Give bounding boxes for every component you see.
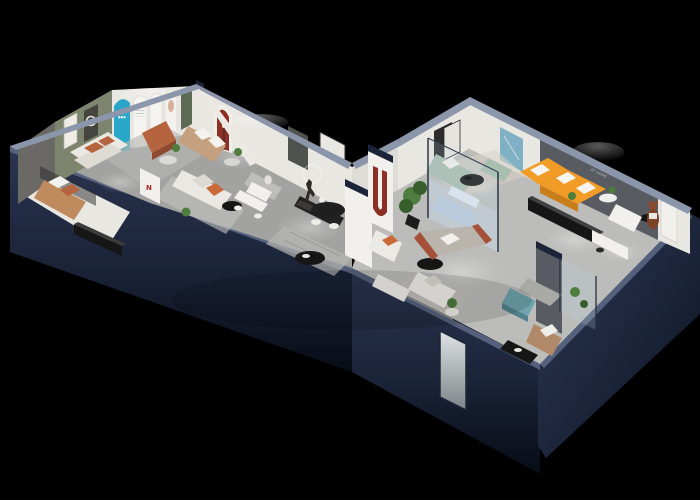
dining-chair-white bbox=[329, 223, 339, 229]
mirror-door bbox=[440, 331, 466, 410]
column-logo-mark: N bbox=[146, 184, 152, 192]
black-stool bbox=[596, 248, 604, 253]
potted-plant bbox=[172, 144, 180, 152]
poster-line bbox=[136, 116, 145, 117]
bear-bib bbox=[649, 213, 657, 219]
potted-plant bbox=[182, 208, 191, 217]
sofa-plant bbox=[568, 192, 576, 200]
cactus-plant bbox=[580, 300, 588, 308]
dining-chair bbox=[234, 206, 242, 211]
round-coffee-table bbox=[159, 156, 177, 165]
poster-line bbox=[136, 113, 145, 114]
indoor-tree bbox=[399, 199, 413, 213]
floor-shadow bbox=[172, 270, 532, 330]
table-plant bbox=[609, 187, 616, 194]
showroom-render: ●●● 888 LIFE IS THAT WE G bbox=[0, 0, 700, 500]
table-tray bbox=[514, 348, 522, 352]
dining-chair-white bbox=[311, 219, 321, 225]
side-table bbox=[224, 158, 240, 166]
cactus-plant bbox=[570, 287, 580, 297]
indoor-tree bbox=[413, 181, 427, 195]
poster-portrait-figure bbox=[168, 100, 174, 112]
white-tower-column bbox=[345, 186, 372, 268]
isometric-floorplan-svg: ●●● 888 LIFE IS THAT WE G bbox=[0, 0, 700, 500]
poster-line bbox=[136, 110, 145, 111]
red-u-column bbox=[368, 151, 393, 233]
black-oval-table bbox=[417, 258, 443, 270]
potted-plant bbox=[234, 148, 242, 156]
black-dining-table bbox=[311, 202, 345, 218]
table-tray bbox=[302, 254, 310, 258]
bear-ear bbox=[655, 201, 658, 204]
blue-arch-dots: ●●● bbox=[118, 115, 126, 119]
vanity-mirror bbox=[264, 175, 272, 185]
dining-chair bbox=[254, 214, 262, 219]
white-coffee-table bbox=[599, 194, 617, 203]
bear-ear bbox=[648, 201, 651, 204]
desk-lamp bbox=[319, 197, 325, 203]
black-oval-table bbox=[295, 251, 325, 265]
